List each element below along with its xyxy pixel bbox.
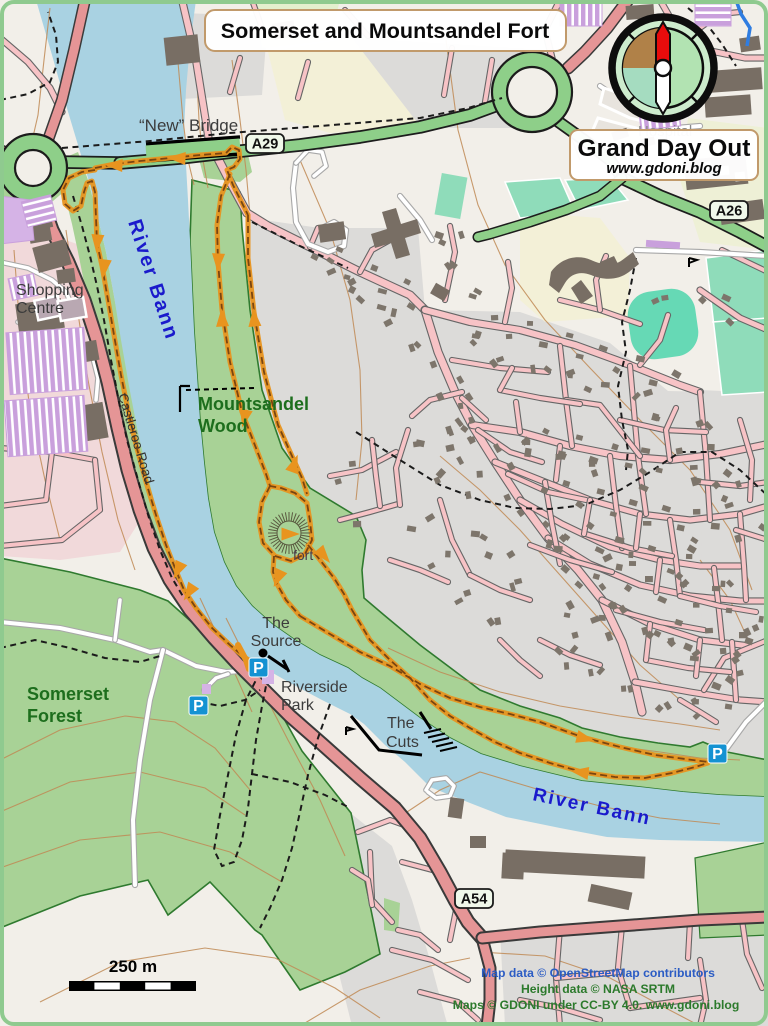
svg-text:Somerset: Somerset [27,684,109,704]
svg-text:“New” Bridge: “New” Bridge [139,116,238,135]
svg-text:Forest: Forest [27,706,82,726]
svg-text:Wood: Wood [198,416,248,436]
svg-text:Cuts: Cuts [386,734,419,751]
svg-text:Map data © OpenStreetMap contr: Map data © OpenStreetMap contributors [481,966,715,980]
svg-text:250 m: 250 m [109,957,157,976]
svg-text:P: P [193,698,204,715]
svg-text:Height data © NASA SRTM: Height data © NASA SRTM [521,982,675,996]
svg-text:Source: Source [251,633,302,650]
svg-text:P: P [253,660,264,677]
svg-text:Park: Park [281,697,315,714]
svg-text:A29: A29 [252,137,279,153]
svg-text:A26: A26 [716,204,743,220]
svg-text:www.gdoni.blog: www.gdoni.blog [606,160,721,177]
svg-text:Grand Day Out: Grand Day Out [578,135,751,162]
svg-text:Maps © GDONI under CC-BY 4.0.: Maps © GDONI under CC-BY 4.0. www.gdoni.… [453,998,740,1012]
svg-text:The: The [387,715,415,732]
svg-text:Riverside: Riverside [281,679,348,696]
svg-text:Shopping: Shopping [16,282,84,299]
svg-text:Somerset and Mountsandel Fort: Somerset and Mountsandel Fort [221,19,550,43]
svg-text:fort: fort [293,547,313,563]
svg-text:A54: A54 [461,892,488,908]
svg-text:The: The [262,615,290,632]
svg-text:P: P [712,746,723,763]
svg-text:Centre: Centre [16,300,64,317]
svg-text:Mountsandel: Mountsandel [198,394,309,414]
